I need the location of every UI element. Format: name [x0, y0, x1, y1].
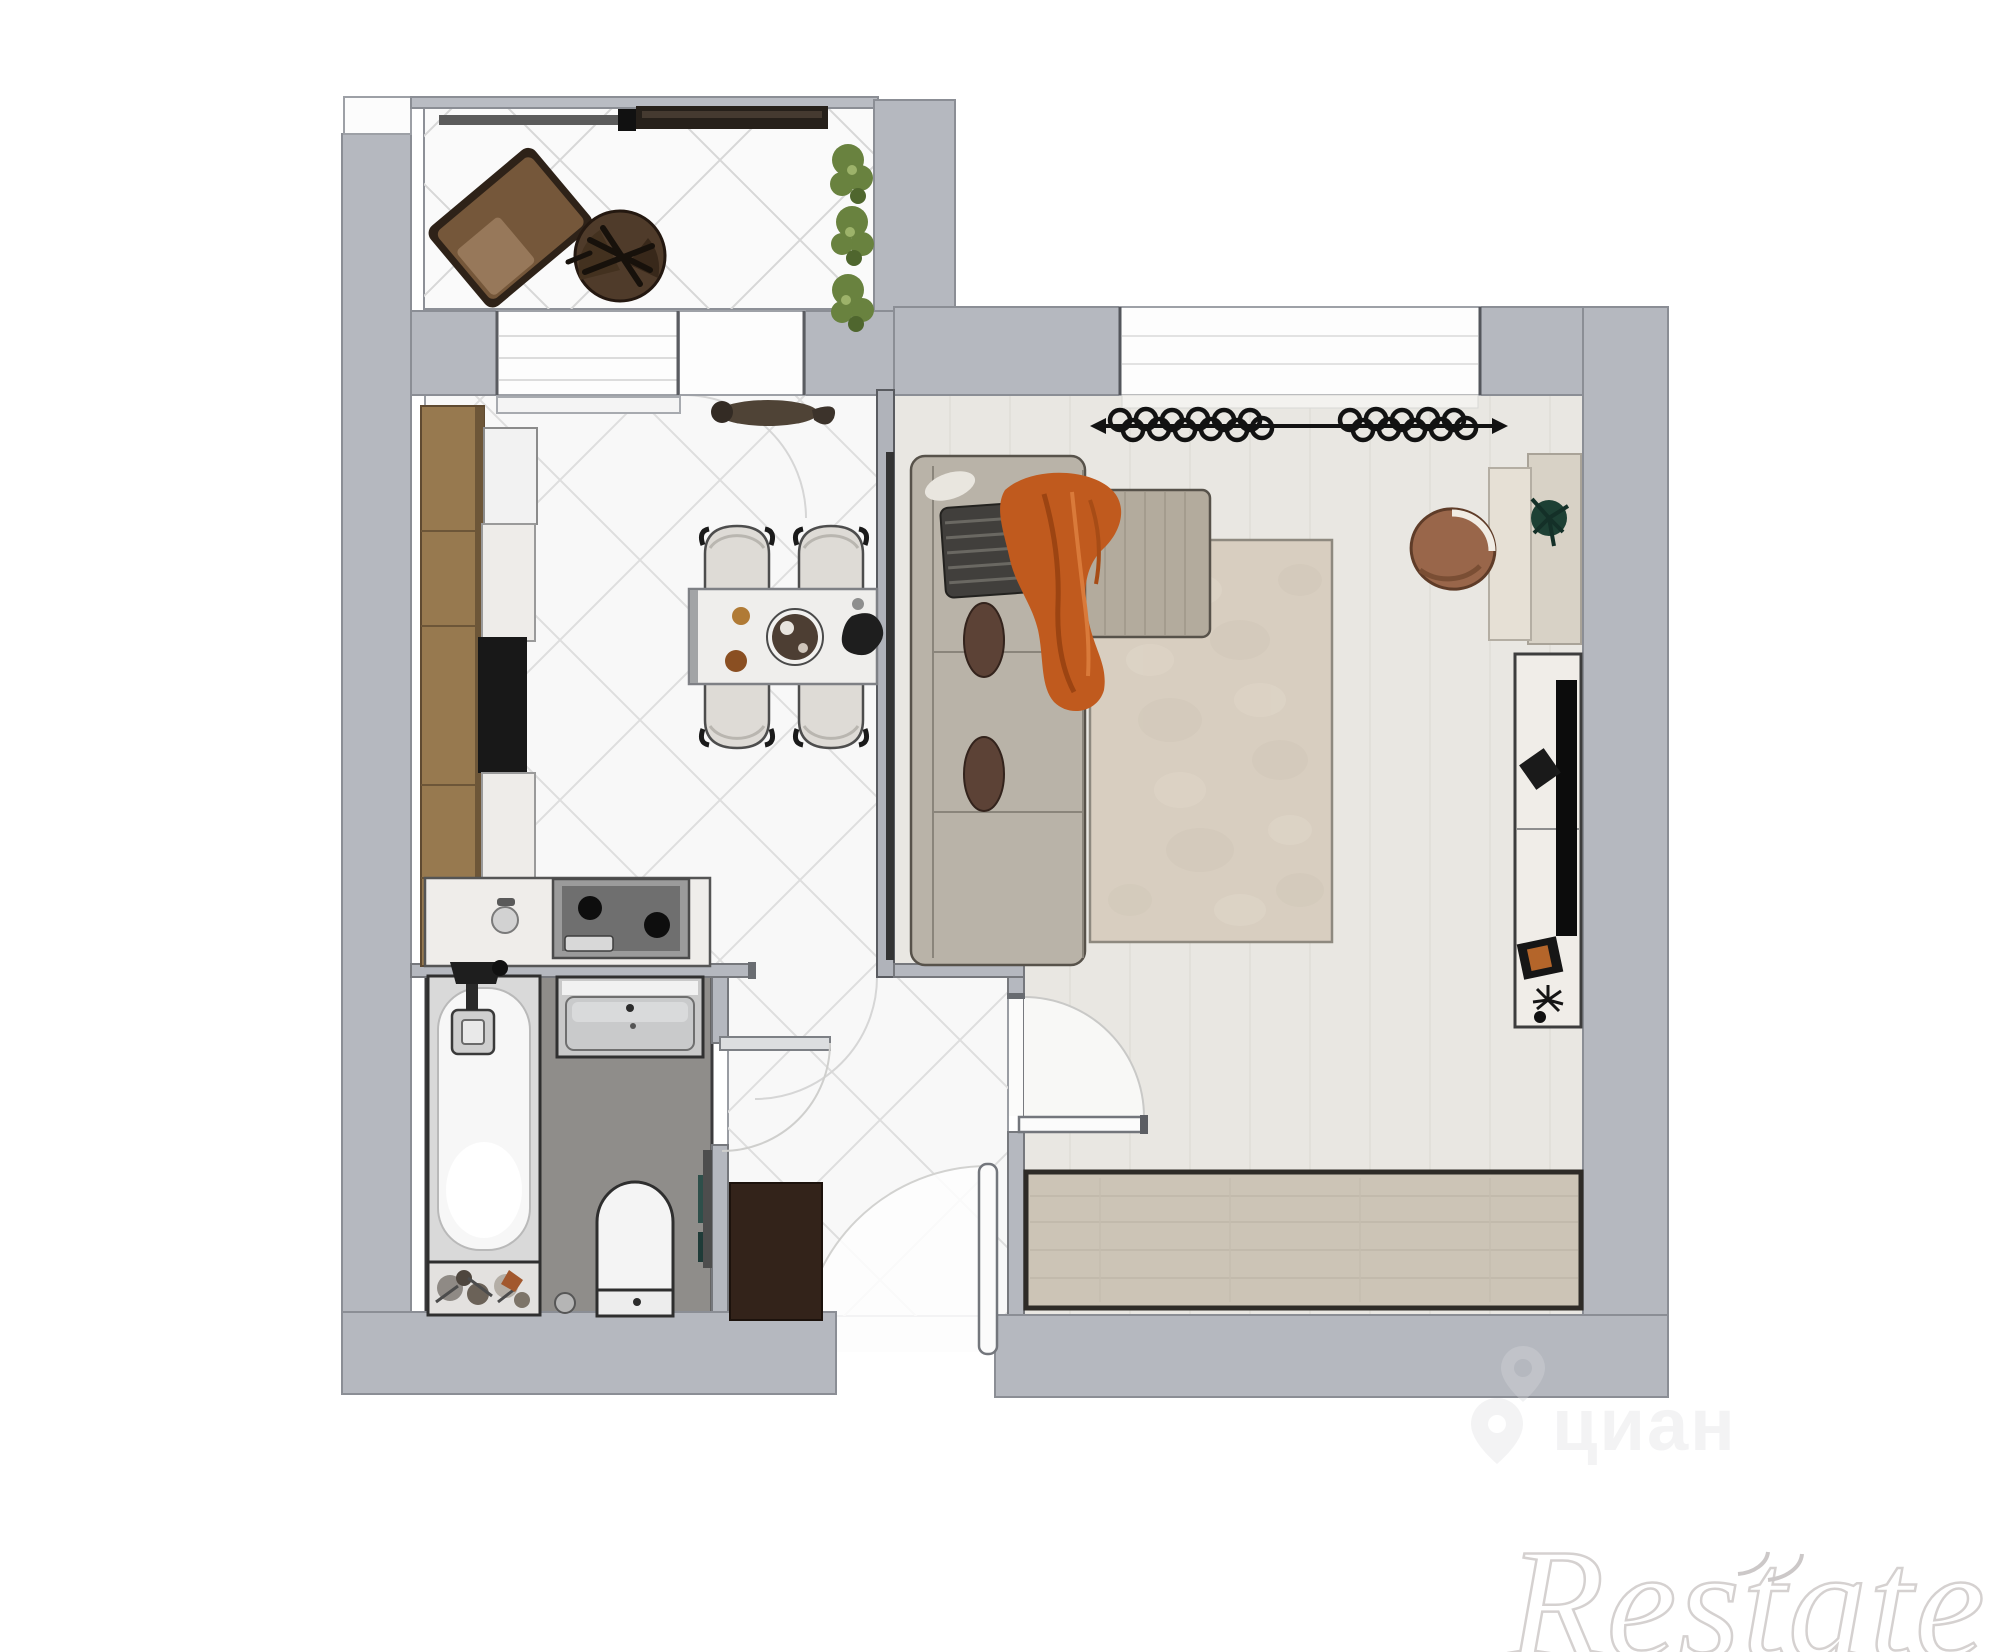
svg-text:Restate: Restate: [1507, 1517, 1987, 1652]
svg-text:циан: циан: [1552, 1383, 1737, 1466]
